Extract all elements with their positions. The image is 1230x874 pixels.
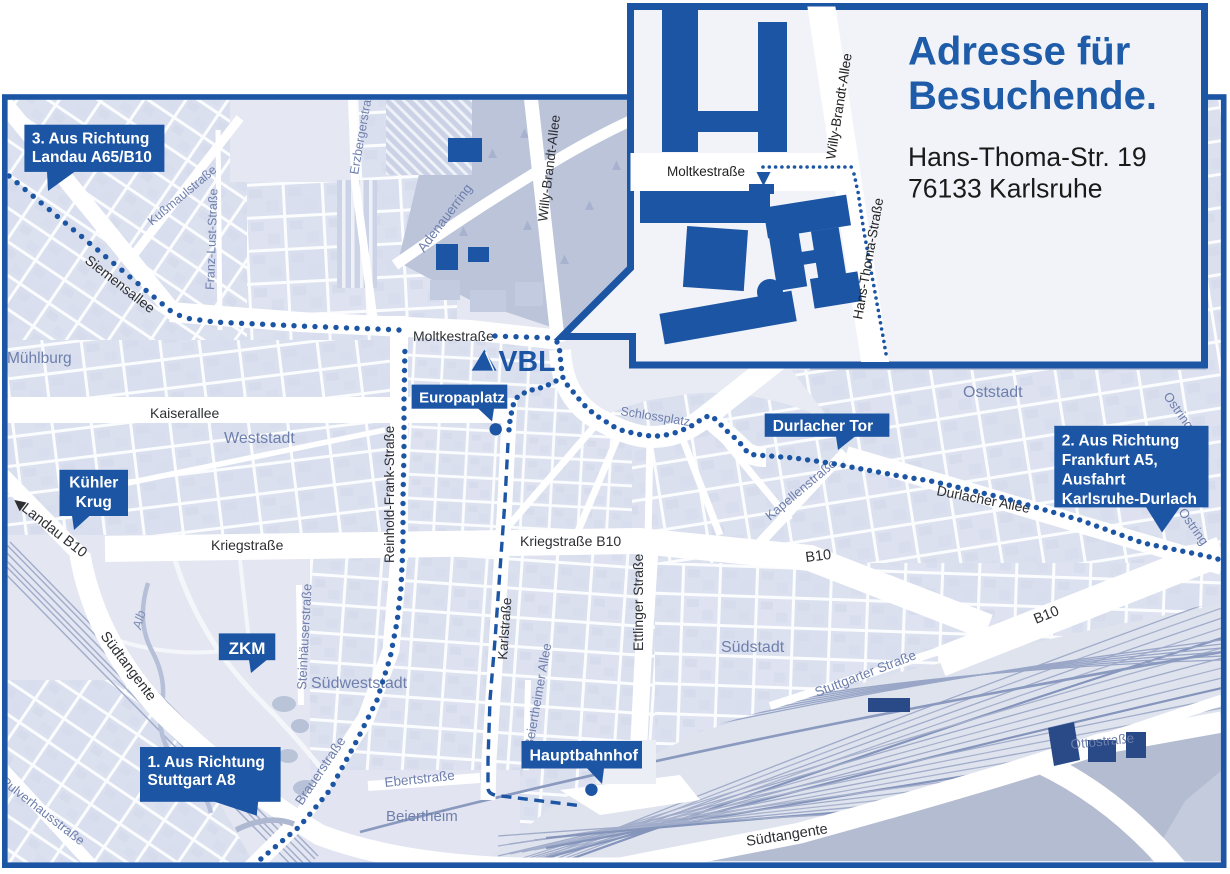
svg-text:Ettlinger Straße: Ettlinger Straße [630,554,646,651]
svg-text:Weststadt: Weststadt [224,430,295,447]
svg-text:Stuttgart A8: Stuttgart A8 [148,772,236,789]
svg-text:VBL: VBL [499,346,556,378]
svg-text:Hauptbahnhof: Hauptbahnhof [530,748,639,765]
svg-text:Landau A65/B10: Landau A65/B10 [32,149,152,166]
svg-text:Moltkestraße: Moltkestraße [413,328,494,344]
svg-text:Kriegstraße: Kriegstraße [211,537,284,553]
svg-text:1. Aus Richtung: 1. Aus Richtung [148,754,265,771]
svg-text:Karlsruhe-Durlach: Karlsruhe-Durlach [1062,491,1197,508]
svg-text:Mühlburg: Mühlburg [7,350,72,367]
svg-text:2. Aus Richtung: 2. Aus Richtung [1062,432,1179,449]
svg-text:Oststadt: Oststadt [963,384,1023,401]
svg-text:Moltkestraße: Moltkestraße [667,164,745,179]
svg-text:Beiertheim: Beiertheim [386,808,458,825]
svg-text:Südstadt: Südstadt [721,639,785,656]
svg-text:Durlacher Tor: Durlacher Tor [773,418,874,435]
svg-text:Besuchende.: Besuchende. [908,74,1157,118]
svg-text:Südweststadt: Südweststadt [311,675,408,692]
svg-text:Frankfurt A5,: Frankfurt A5, [1062,452,1158,469]
svg-text:Krug: Krug [76,494,112,511]
svg-text:Europaplatz: Europaplatz [419,390,505,407]
svg-text:Hans-Thoma-Str. 19: Hans-Thoma-Str. 19 [908,142,1147,172]
svg-text:Kühler: Kühler [69,475,118,492]
svg-text:ZKM: ZKM [229,639,266,658]
svg-text:Ausfahrt: Ausfahrt [1062,472,1126,489]
svg-text:Adresse für: Adresse für [908,30,1130,74]
svg-text:Reinhold-Frank-Straße: Reinhold-Frank-Straße [382,426,397,563]
svg-text:76133 Karlsruhe: 76133 Karlsruhe [908,174,1102,204]
svg-text:Kaiserallee: Kaiserallee [150,405,219,421]
svg-text:3. Aus Richtung: 3. Aus Richtung [32,131,149,148]
svg-text:B10: B10 [805,547,833,566]
svg-text:Kriegstraße B10: Kriegstraße B10 [520,533,621,549]
